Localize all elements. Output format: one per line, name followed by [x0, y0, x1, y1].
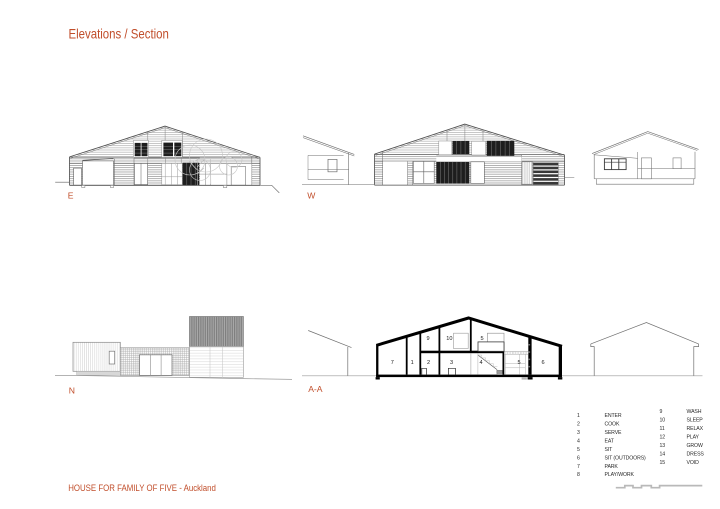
svg-text:4: 4	[577, 438, 580, 444]
svg-text:SERVE: SERVE	[605, 430, 623, 436]
svg-text:VOID: VOID	[687, 460, 700, 466]
svg-text:HOUSE FOR FAMILY OF FIVE - Auc: HOUSE FOR FAMILY OF FIVE - Auckland	[68, 483, 216, 494]
svg-text:ENTER: ENTER	[605, 413, 622, 419]
svg-text:10: 10	[446, 336, 452, 342]
svg-text:9: 9	[427, 336, 430, 342]
svg-text:COOK: COOK	[605, 422, 620, 428]
svg-text:W: W	[307, 191, 316, 201]
svg-text:PLAY/WORK: PLAY/WORK	[605, 472, 635, 478]
svg-text:7: 7	[391, 360, 394, 366]
svg-text:Elevations / Section: Elevations / Section	[69, 25, 169, 41]
svg-text:6: 6	[577, 455, 580, 461]
svg-text:EAT: EAT	[605, 438, 615, 444]
svg-text:5: 5	[577, 447, 580, 453]
svg-text:3: 3	[577, 430, 580, 436]
svg-text:PARK: PARK	[605, 464, 619, 470]
svg-text:1: 1	[411, 360, 414, 366]
svg-text:8: 8	[577, 472, 580, 478]
svg-text:N: N	[69, 386, 75, 396]
svg-text:10: 10	[660, 418, 666, 424]
svg-text:DRESS: DRESS	[687, 451, 705, 457]
svg-text:5: 5	[481, 336, 484, 342]
svg-text:PLAY: PLAY	[687, 434, 700, 440]
svg-text:WASH: WASH	[687, 409, 702, 415]
svg-text:SIT: SIT	[605, 447, 614, 453]
svg-text:RELAX: RELAX	[687, 426, 704, 432]
svg-text:7: 7	[577, 464, 580, 470]
svg-text:5: 5	[518, 360, 521, 366]
svg-text:E: E	[68, 190, 74, 200]
svg-text:GROW: GROW	[687, 443, 703, 449]
svg-text:2: 2	[577, 422, 580, 428]
svg-text:SLEEP: SLEEP	[687, 418, 704, 424]
svg-text:11: 11	[660, 426, 665, 432]
svg-text:9: 9	[660, 409, 663, 415]
svg-text:4: 4	[480, 360, 483, 366]
svg-text:2: 2	[427, 360, 430, 366]
svg-text:13: 13	[660, 443, 666, 449]
svg-text:12: 12	[660, 434, 666, 440]
svg-text:15: 15	[660, 460, 666, 466]
svg-text:SIT (OUTDOORS): SIT (OUTDOORS)	[605, 455, 647, 461]
svg-text:3: 3	[450, 360, 453, 366]
svg-text:14: 14	[660, 451, 666, 457]
svg-text:6: 6	[542, 360, 545, 366]
svg-text:1: 1	[577, 413, 580, 419]
svg-text:A-A: A-A	[308, 384, 323, 394]
